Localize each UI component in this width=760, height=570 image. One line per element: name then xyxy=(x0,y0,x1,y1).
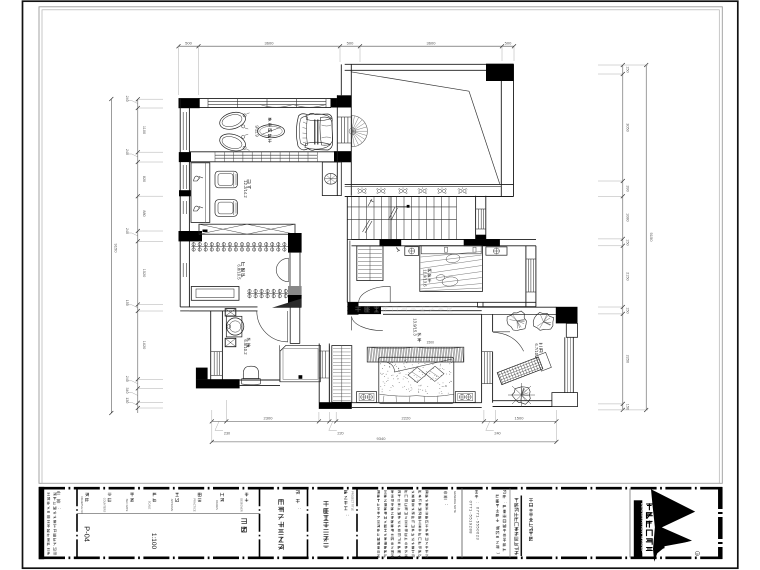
svg-text:3600: 3600 xyxy=(427,40,437,45)
svg-text:1: 1 xyxy=(476,515,481,517)
svg-text:9340: 9340 xyxy=(377,436,387,441)
svg-text::: : xyxy=(504,502,509,503)
svg-text:500: 500 xyxy=(347,40,354,45)
svg-text:240: 240 xyxy=(125,376,129,382)
svg-text:DESIGNER: DESIGNER xyxy=(240,498,244,512)
svg-text:6.8/10.5: 6.8/10.5 xyxy=(237,264,242,280)
svg-text:240: 240 xyxy=(125,149,129,155)
svg-text:1:100: 1:100 xyxy=(150,533,157,550)
svg-text::: : xyxy=(476,502,481,503)
svg-text:240: 240 xyxy=(125,228,129,234)
svg-text:130: 130 xyxy=(125,397,129,403)
svg-text:12.2/14.2: 12.2/14.2 xyxy=(243,180,248,198)
svg-text:2300: 2300 xyxy=(264,416,274,421)
svg-text:2250: 2250 xyxy=(626,355,630,363)
svg-text:GENERAL NOTE: GENERAL NOTE xyxy=(453,491,457,513)
svg-text:DRAWING NO: DRAWING NO xyxy=(80,496,84,513)
svg-text:2220: 2220 xyxy=(402,416,412,421)
svg-text:3600: 3600 xyxy=(265,40,275,45)
svg-text:150: 150 xyxy=(125,300,129,306)
svg-text:6.5/10.2: 6.5/10.2 xyxy=(243,339,248,355)
svg-text:9150: 9150 xyxy=(649,233,654,243)
svg-text:150: 150 xyxy=(626,404,630,410)
svg-text:150: 150 xyxy=(626,66,630,72)
svg-text:1: 1 xyxy=(468,509,473,511)
svg-text:DRAWN: DRAWN xyxy=(215,500,219,510)
svg-text:11.9/13.6: 11.9/13.6 xyxy=(423,269,428,287)
svg-text::: : xyxy=(345,515,350,516)
svg-text:340: 340 xyxy=(125,388,129,394)
svg-text::: : xyxy=(296,508,301,509)
svg-text:1100: 1100 xyxy=(142,126,146,134)
svg-text:220: 220 xyxy=(337,432,343,436)
svg-text:230: 230 xyxy=(224,432,230,436)
svg-text:APPROVE: APPROVE xyxy=(170,499,174,512)
svg-text:880: 880 xyxy=(142,210,146,216)
svg-text:150: 150 xyxy=(626,307,630,313)
svg-text:240: 240 xyxy=(125,96,129,102)
svg-text:3050: 3050 xyxy=(626,123,630,131)
svg-text:500: 500 xyxy=(185,40,192,45)
svg-text:SEC DATE: SEC DATE xyxy=(125,499,129,512)
svg-text:240: 240 xyxy=(494,432,500,436)
svg-text:SCALE: SCALE xyxy=(148,501,152,510)
svg-text:9150: 9150 xyxy=(114,244,119,254)
svg-text:9/11.9: 9/11.9 xyxy=(255,125,260,137)
svg-text:6.7/10.3: 6.7/10.3 xyxy=(534,343,539,359)
svg-text:13.9/15.3: 13.9/15.3 xyxy=(413,318,418,336)
svg-text:2150: 2150 xyxy=(626,272,630,280)
svg-text:1080: 1080 xyxy=(626,213,630,221)
svg-text:1500: 1500 xyxy=(427,341,435,345)
svg-text:500: 500 xyxy=(505,40,512,45)
svg-text:COUNTERS: COUNTERS xyxy=(103,498,107,513)
svg-text:390: 390 xyxy=(626,185,630,191)
svg-text:820: 820 xyxy=(142,176,146,182)
svg-text::: : xyxy=(57,508,62,509)
svg-text::: : xyxy=(445,504,450,505)
svg-text:1500: 1500 xyxy=(515,416,525,421)
svg-text:PROJECT TITLE: PROJECT TITLE xyxy=(350,491,354,511)
svg-text:PRACTICE: PRACTICE xyxy=(193,498,197,511)
svg-text:P-04: P-04 xyxy=(83,526,92,542)
svg-text:150: 150 xyxy=(626,239,630,245)
svg-text:1620: 1620 xyxy=(142,341,146,349)
svg-text:1520: 1520 xyxy=(142,269,146,277)
svg-text:DECORATION GROUP: DECORATION GROUP xyxy=(640,503,645,554)
